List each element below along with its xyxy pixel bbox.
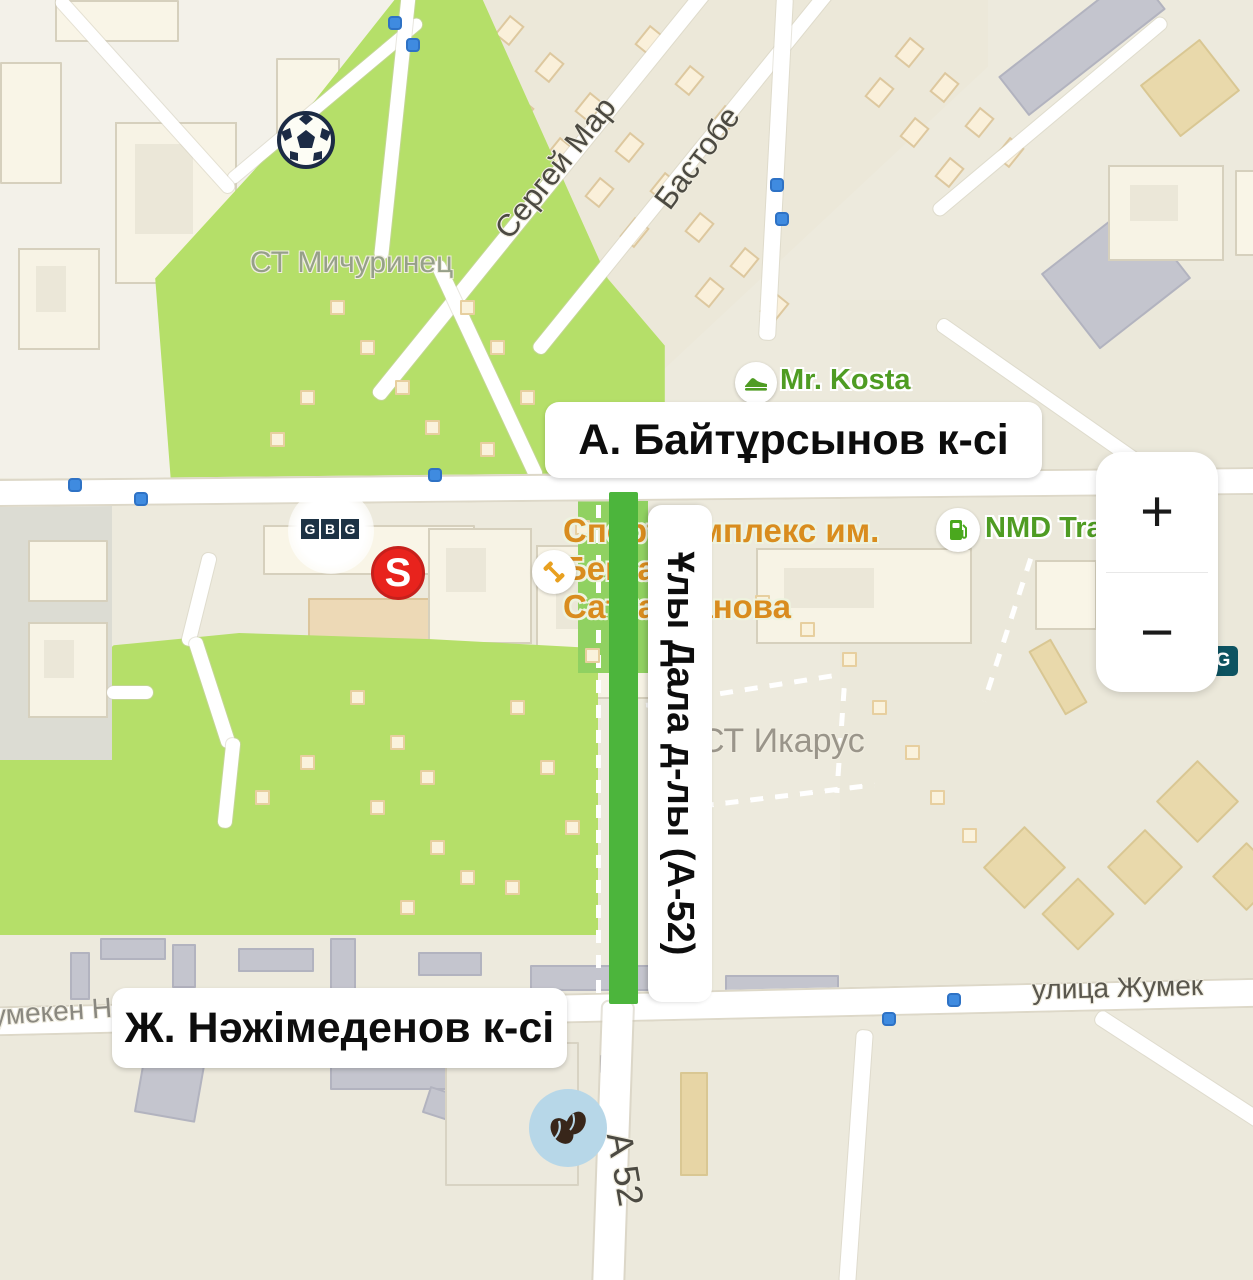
gbg-logo[interactable]: G B G xyxy=(288,488,374,574)
building-tan xyxy=(1140,39,1241,138)
park-house xyxy=(540,760,555,775)
park-house xyxy=(255,790,270,805)
park-house xyxy=(505,880,520,895)
building xyxy=(1108,165,1224,261)
park-house xyxy=(420,770,435,785)
park-house xyxy=(800,622,815,637)
transit-stop[interactable] xyxy=(134,492,148,506)
sneaker-icon[interactable] xyxy=(735,362,777,404)
park-house xyxy=(520,390,535,405)
coffee-beans-icon[interactable] xyxy=(529,1089,607,1167)
park-house xyxy=(962,828,977,843)
dacha-house xyxy=(964,107,994,138)
transit-stop[interactable] xyxy=(882,1012,896,1026)
building xyxy=(428,528,532,644)
building-gray xyxy=(100,938,166,960)
transit-stop[interactable] xyxy=(947,993,961,1007)
park-house xyxy=(350,690,365,705)
park-house xyxy=(490,340,505,355)
building xyxy=(0,62,62,184)
park-house xyxy=(872,700,887,715)
building xyxy=(1035,560,1097,630)
street-label-uly-dala[interactable]: Ұлы Дала д-лы (А-52) xyxy=(648,505,712,1002)
park-house xyxy=(480,442,495,457)
building xyxy=(28,540,108,602)
label-st-michurinets: СТ Мичуринец xyxy=(250,246,453,280)
building-tan xyxy=(680,1072,708,1176)
s-market-logo[interactable]: S xyxy=(371,546,425,600)
park-house xyxy=(390,735,405,750)
label-ulitsa-zhumek: улица Жумек xyxy=(1032,970,1204,1006)
gbg-letter: G xyxy=(301,519,319,539)
park-house xyxy=(905,745,920,760)
building-gray xyxy=(330,938,356,990)
building-gray xyxy=(172,944,196,988)
park-house xyxy=(360,340,375,355)
park-house xyxy=(300,390,315,405)
zoom-control: + − xyxy=(1096,452,1218,692)
transit-stop[interactable] xyxy=(428,468,442,482)
label-st-ikarus: СТ Икарус xyxy=(700,722,865,761)
park-house xyxy=(510,700,525,715)
street-label-baitursynov[interactable]: А. Байтұрсынов к-сі xyxy=(545,402,1042,478)
street-label-nazhimedenov[interactable]: Ж. Нәжімеденов к-сі xyxy=(112,988,567,1068)
soccer-ball-icon[interactable] xyxy=(277,111,335,169)
label-mr-kosta[interactable]: Mr. Kosta xyxy=(780,364,911,397)
park-path-4 xyxy=(181,552,218,648)
building xyxy=(28,622,108,718)
park-house xyxy=(430,840,445,855)
building-gray xyxy=(418,952,482,976)
building xyxy=(18,248,100,350)
park-house xyxy=(565,820,580,835)
park-house xyxy=(395,380,410,395)
label-nmd[interactable]: NMD Tra xyxy=(985,512,1103,545)
park-house xyxy=(270,432,285,447)
park-house xyxy=(930,790,945,805)
fuel-pump-icon[interactable] xyxy=(936,508,980,552)
building-gray xyxy=(238,948,314,972)
park-house xyxy=(585,648,600,663)
park-house xyxy=(460,300,475,315)
park-house xyxy=(460,870,475,885)
gbg-letter: B xyxy=(321,519,339,539)
gbg-letter: G xyxy=(341,519,359,539)
transit-stop[interactable] xyxy=(775,212,789,226)
building-gray xyxy=(998,0,1166,116)
park-house xyxy=(842,652,857,667)
zoom-in-button[interactable]: + xyxy=(1096,452,1218,572)
highlighted-route-uly-dala[interactable] xyxy=(609,492,638,1004)
park-house xyxy=(400,900,415,915)
street-label-uly-dala-text: Ұлы Дала д-лы (А-52) xyxy=(648,505,712,1002)
dumbbell-icon[interactable] xyxy=(532,550,576,594)
transit-stop[interactable] xyxy=(770,178,784,192)
park-house xyxy=(300,755,315,770)
transit-stop[interactable] xyxy=(68,478,82,492)
park-house xyxy=(425,420,440,435)
park-house xyxy=(330,300,345,315)
park-house xyxy=(370,800,385,815)
zoom-out-button[interactable]: − xyxy=(1096,573,1218,693)
transit-stop[interactable] xyxy=(406,38,420,52)
transit-stop[interactable] xyxy=(388,16,402,30)
park-path-stub xyxy=(107,686,153,699)
building xyxy=(1235,170,1253,256)
map-canvas[interactable]: СТ Мичуринец Сергей Мар Бастобе СТ Икару… xyxy=(0,0,1253,1280)
